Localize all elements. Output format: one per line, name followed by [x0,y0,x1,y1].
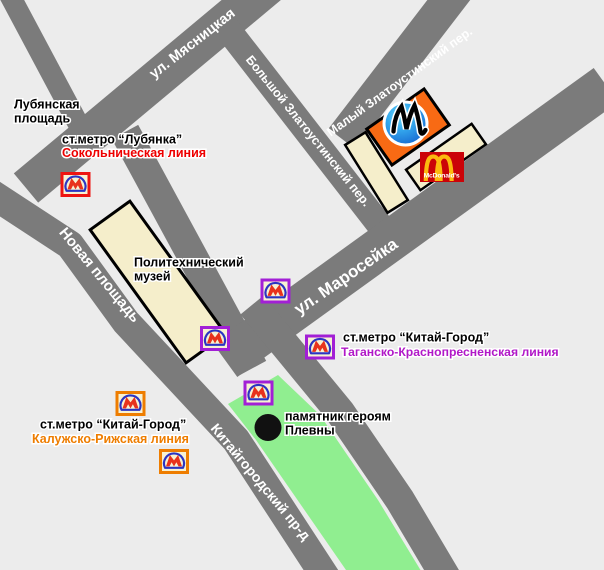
svg-text:памятник героям: памятник героям [285,410,391,424]
svg-text:Сокольническая линия: Сокольническая линия [62,146,206,160]
svg-text:Калужско-Рижская линия: Калужско-Рижская линия [32,432,189,446]
svg-text:ст.метро “Китай-Город”: ст.метро “Китай-Город” [343,331,489,345]
svg-text:Таганско-Краснопресненская лин: Таганско-Краснопресненская линия [341,345,559,359]
svg-text:Лубянская: Лубянская [14,98,80,112]
svg-text:Политехнический: Политехнический [134,256,244,270]
svg-text:McDonald's: McDonald's [424,173,460,180]
svg-text:ст.метро “Китай-Город”: ст.метро “Китай-Город” [40,418,186,432]
svg-text:площадь: площадь [14,112,71,126]
svg-text:музей: музей [134,270,171,284]
svg-text:ст.метро “Лубянка”: ст.метро “Лубянка” [62,133,182,147]
svg-text:Плевны: Плевны [285,424,335,438]
